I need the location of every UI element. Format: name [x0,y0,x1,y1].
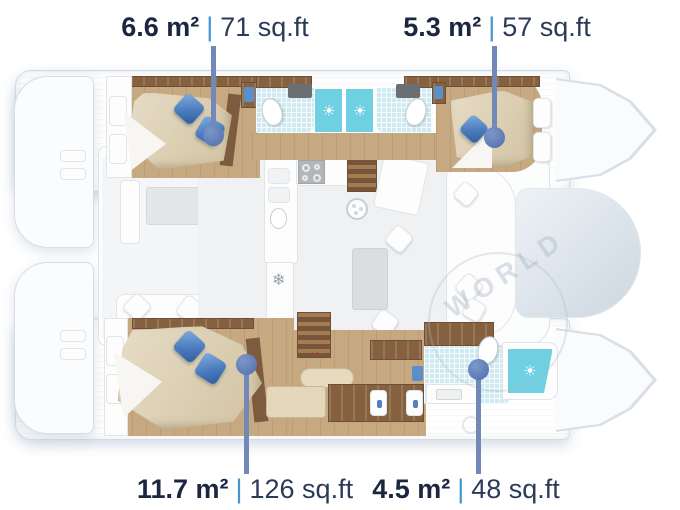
towel [244,87,254,102]
area-metric: 5.3 m² [403,12,481,42]
leader-line-top-left [211,46,216,136]
port-transom-step [60,150,86,162]
towel [412,366,423,381]
stove [298,160,325,184]
separator: | [450,474,471,504]
burner-icon [314,164,320,170]
sink-counter [288,84,312,98]
starboard-transom-step [60,330,86,342]
starboard-bow [555,330,653,430]
leader-line-bottom-left [244,364,249,474]
area-metric: 11.7 m² [137,474,229,504]
leader-line-top-right [492,46,497,138]
leader-dot-top-left [203,125,224,146]
area-imperial: 57 sq.ft [502,12,591,42]
burner-icon [302,175,308,181]
hatch-dot [359,207,363,211]
door-handle [377,400,382,408]
hull-window-seat [109,134,127,164]
starboard-transom-step [60,348,86,360]
white-pillow [533,98,551,128]
area-metric: 4.5 m² [372,474,450,504]
area-label-bottom-left: 11.7 m²|126 sq.ft [133,474,357,504]
hatch-dot [354,211,358,215]
locker-door [370,390,387,416]
area-label-bottom-right: 4.5 m²|48 sq.ft [354,474,578,504]
separator: | [199,12,220,42]
hull-sofa [266,386,326,418]
galley-sink-double [268,168,290,184]
shower-drain-icon: ☀ [352,104,368,119]
fwd-port-cabin-shelf [436,76,540,87]
area-label-top-right: 5.3 m²|57 sq.ft [390,12,604,42]
cockpit-bench [120,180,140,244]
burner-icon [302,164,310,172]
white-pillow [533,132,551,162]
leader-dot-top-right [484,127,505,148]
leader-dot-bottom-right [468,359,489,380]
area-imperial: 48 sq.ft [471,474,560,504]
port-transom-steps [14,76,94,248]
locker-door [406,390,423,416]
hull-cabinets [370,340,422,360]
shower-right: ☀ [345,88,374,133]
leader-line-bottom-right [476,368,481,474]
snowflake-icon: ❄ [272,273,285,289]
port-transom-step [60,168,86,180]
galley-sink-double [268,187,290,203]
separator: | [481,12,502,42]
separator: | [228,474,249,504]
galley-sink-oval [270,208,287,229]
port-bow [555,80,653,180]
direction-arrow-icon: ↔ [308,344,322,358]
area-metric: 6.6 m² [121,12,199,42]
towel [434,86,443,99]
sink-counter [396,84,420,98]
leader-dot-bottom-left [236,354,257,375]
area-imperial: 71 sq.ft [220,12,309,42]
deck-hatch [346,198,368,220]
burner-icon [313,174,321,182]
hull-window-seat [109,96,127,126]
door-handle [413,400,418,408]
area-imperial: 126 sq.ft [250,474,354,504]
hatch-dot [352,204,356,208]
catamaran-floorplan: ❄ ☀ ☀ [0,0,680,510]
area-label-top-left: 6.6 m²|71 sq.ft [105,12,325,42]
vanity-sink [436,389,462,400]
salon-table [352,248,388,310]
shower-drain-icon: ☀ [321,104,337,119]
shower-left: ☀ [314,88,343,133]
